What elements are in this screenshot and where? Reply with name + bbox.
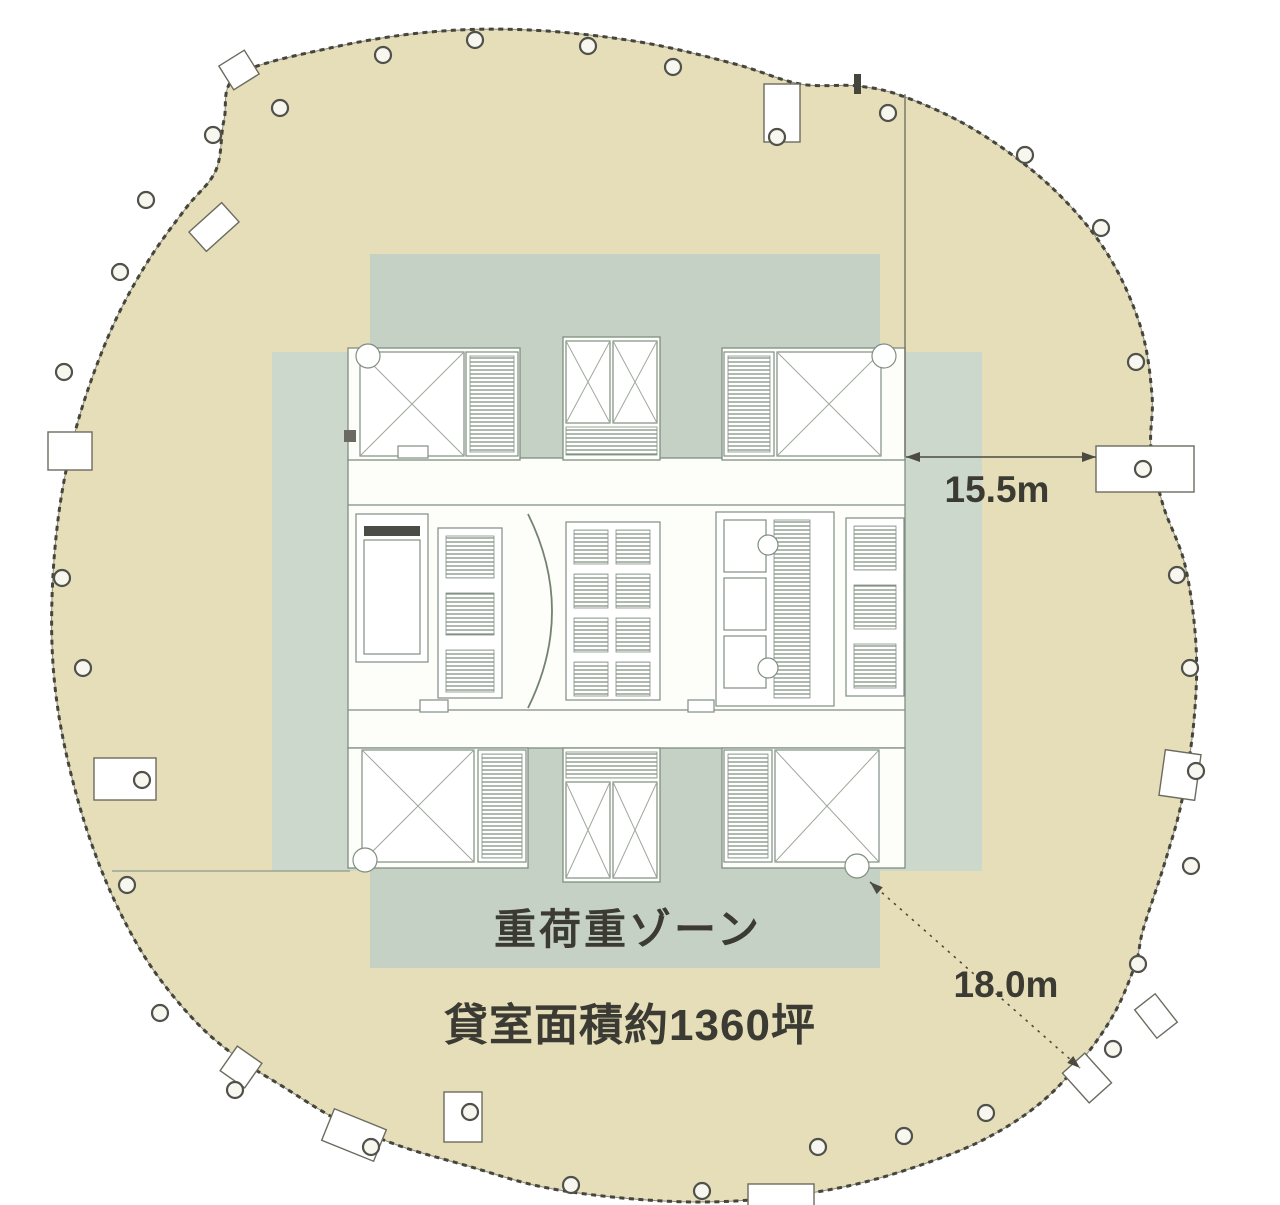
elevator-car [724, 578, 766, 630]
building-core [344, 337, 905, 882]
perimeter-column [227, 1082, 243, 1098]
perimeter-column [272, 100, 288, 116]
perimeter-column [112, 264, 128, 280]
elevator-hatch [446, 650, 494, 692]
perimeter-column [1183, 858, 1199, 874]
perimeter-column [56, 364, 72, 380]
elevator-hatch [446, 593, 494, 635]
core-corner-column [353, 848, 377, 872]
elevator-hatch [566, 752, 657, 778]
elevator-hatch [728, 754, 768, 858]
perimeter-column [1093, 220, 1109, 236]
shaft-marker [344, 430, 356, 442]
perimeter-column [880, 105, 896, 121]
perimeter-column [896, 1128, 912, 1144]
perimeter-column [462, 1104, 478, 1120]
dimension-label-18-0m: 18.0m [954, 964, 1059, 1005]
core-column [758, 535, 778, 555]
perimeter-column [467, 32, 483, 48]
elevator-hatch [616, 530, 650, 564]
elevator-hatch [574, 618, 608, 652]
perimeter-column [152, 1005, 168, 1021]
perimeter-column [138, 192, 154, 208]
perimeter-column [363, 1139, 379, 1155]
perimeter-column [375, 47, 391, 63]
floor-plan-page: 15.5m 18.0m 重荷重ゾーン 貸室面積約1360坪 [0, 0, 1280, 1205]
elevator-hatch [616, 662, 650, 696]
wall-jog [688, 700, 714, 712]
perimeter-column [134, 772, 150, 788]
facade-step [854, 74, 861, 94]
stair-flight [364, 526, 420, 536]
perimeter-column [1182, 660, 1198, 676]
heavy-load-zone-label: 重荷重ゾーン [494, 906, 762, 953]
elevator-hatch [446, 536, 494, 578]
facade-notch [48, 432, 92, 470]
elevator-hatch [854, 585, 896, 629]
perimeter-column [119, 877, 135, 893]
perimeter-column [1017, 147, 1033, 163]
core-column [758, 658, 778, 678]
perimeter-column [694, 1183, 710, 1199]
core-corner-column [356, 344, 380, 368]
elevator-hatch [574, 662, 608, 696]
elevator-hatch [854, 526, 896, 570]
elevator-hatch [566, 427, 657, 455]
floor-plan-svg: 15.5m 18.0m 重荷重ゾーン 貸室面積約1360坪 [0, 0, 1280, 1205]
wall-jog [420, 700, 448, 712]
stair-well [364, 540, 420, 654]
perimeter-column [1128, 354, 1144, 370]
elevator-hatch [574, 530, 608, 564]
wall-jog [398, 446, 428, 458]
perimeter-column [978, 1105, 994, 1121]
perimeter-column [580, 38, 596, 54]
perimeter-column [810, 1139, 826, 1155]
elevator-hatch [774, 520, 810, 698]
core-corner-column [872, 344, 896, 368]
perimeter-column [54, 570, 70, 586]
elevator-hatch [482, 754, 522, 858]
perimeter-column [563, 1177, 579, 1193]
perimeter-column [1105, 1041, 1121, 1057]
perimeter-column [1130, 956, 1146, 972]
elevator-hatch [616, 618, 650, 652]
perimeter-column [75, 660, 91, 676]
elevator-hatch [728, 356, 770, 452]
perimeter-column [205, 127, 221, 143]
elevator-hatch [574, 574, 608, 608]
perimeter-column [769, 129, 785, 145]
elevator-hatch [616, 574, 650, 608]
facade-notch [1135, 994, 1178, 1038]
dimension-label-15-5m: 15.5m [945, 469, 1050, 510]
rental-area-label: 貸室面積約1360坪 [444, 1000, 816, 1050]
perimeter-column [665, 59, 681, 75]
elevator-hatch [470, 356, 514, 452]
facade-notch [748, 1184, 814, 1205]
perimeter-column [1188, 763, 1204, 779]
core-corner-column [845, 854, 869, 878]
elevator-hatch [854, 644, 896, 688]
perimeter-column [1135, 461, 1151, 477]
perimeter-column [1169, 567, 1185, 583]
